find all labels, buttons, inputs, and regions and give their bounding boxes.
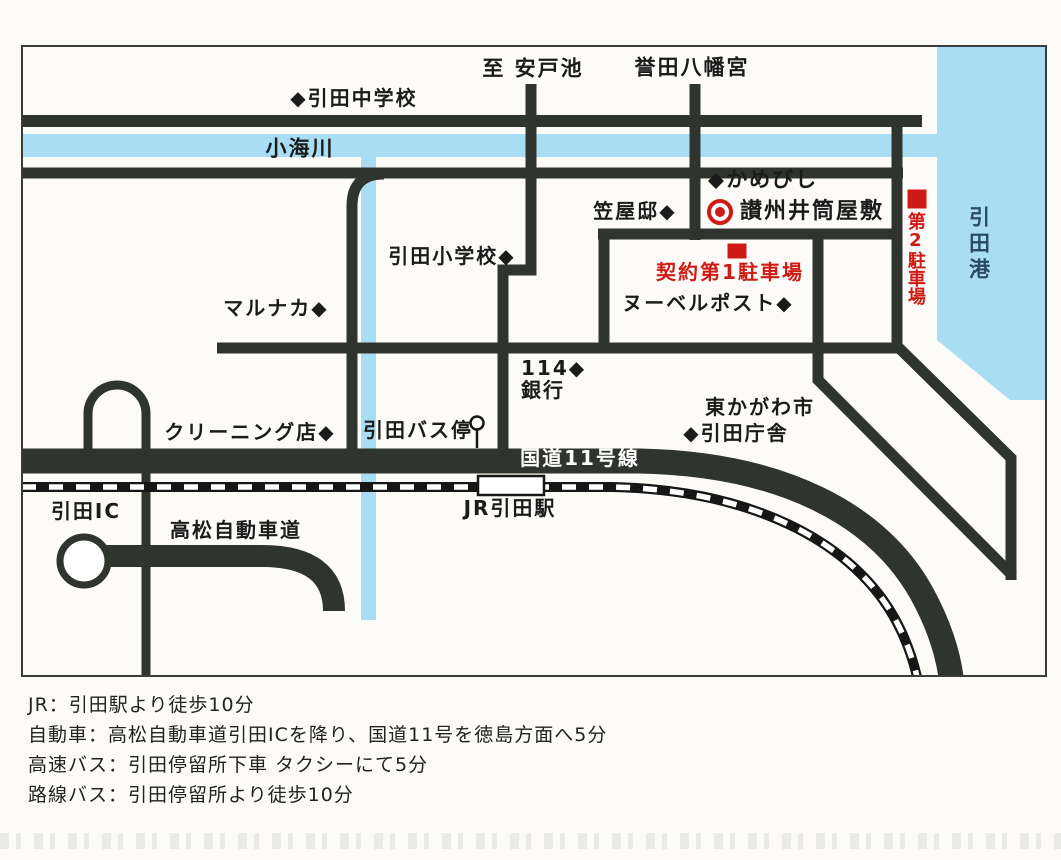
label-cleaning-shop: クリーニング店◆ [164,421,335,443]
label-route11: 国道11号線 [520,447,640,469]
label-higashikagawa-city: 東かがわ市 [705,396,815,418]
label-nouvelle-post: ヌーベルポスト◆ [622,292,793,314]
note-local-bus: 路線バス：引田停留所より徒歩10分 [28,780,607,810]
label-jr-hiketa-station: JR引田駅 [464,497,557,519]
road-ic-ramp [88,385,146,677]
label-bank114: 114◆ 銀行 [521,357,586,401]
note-express-bus: 高速バス：引田停留所下車 タクシーにて5分 [28,750,607,780]
komi-river-water [22,134,937,157]
parking1-marker-icon [728,244,747,259]
destination-marker-icon [707,199,733,225]
river-branch-water [361,157,376,620]
label-kamebishi: ◆かめびし [708,168,818,191]
label-hiketa-bus-stop: 引田バス停 [363,419,473,441]
label-bank114-word: 銀行 [521,379,586,401]
label-hiketa-ic: 引田IC [51,500,121,522]
parking2-marker-icon [908,190,927,209]
label-hiketa-chosha: ◆引田庁舎 [683,422,788,444]
label-contract-parking1: 契約第1駐車場 [656,261,804,283]
label-takamatsu-expressway: 高松自動車道 [170,519,302,541]
access-map-page: 至 安戸池 誉田八幡宮 ◆引田中学校 小海川 ◆かめびし 笠屋邸◆ 讃州井筒屋敷… [0,0,1061,860]
label-parking2: 第2駐車場 [905,212,925,305]
label-hiketa-junior-high: ◆引田中学校 [290,87,417,109]
label-izutsu-yashiki: 讃州井筒屋敷 [740,200,884,224]
label-komi-river: 小海川 [266,137,335,160]
label-kasaya-tei: 笠屋邸◆ [593,200,676,222]
label-hiketa-elementary: 引田小学校◆ [388,245,515,267]
takamatsu-expressway-road [104,556,334,611]
label-hiketa-port: 引田港 [966,206,989,284]
label-to-ando-pond: 至 安戸池 [482,57,583,80]
note-jr: JR：引田駅より徒歩10分 [28,690,607,720]
label-bank114-number: 114◆ [521,357,586,379]
station-symbol [478,476,544,495]
hiketa-ic-symbol [60,537,108,585]
label-honda-hachimangu: 誉田八幡宮 [635,56,750,79]
hiketa-port-sea [937,46,1046,400]
access-notes: JR：引田駅より徒歩10分 自動車：高松自動車道引田ICを降り、国道11号を徳島… [28,690,607,810]
label-marunaka: マルナカ◆ [223,297,328,319]
note-car: 自動車：高松自動車道引田ICを降り、国道11号を徳島方面へ5分 [28,720,607,750]
scan-edge-noise [0,833,1061,849]
